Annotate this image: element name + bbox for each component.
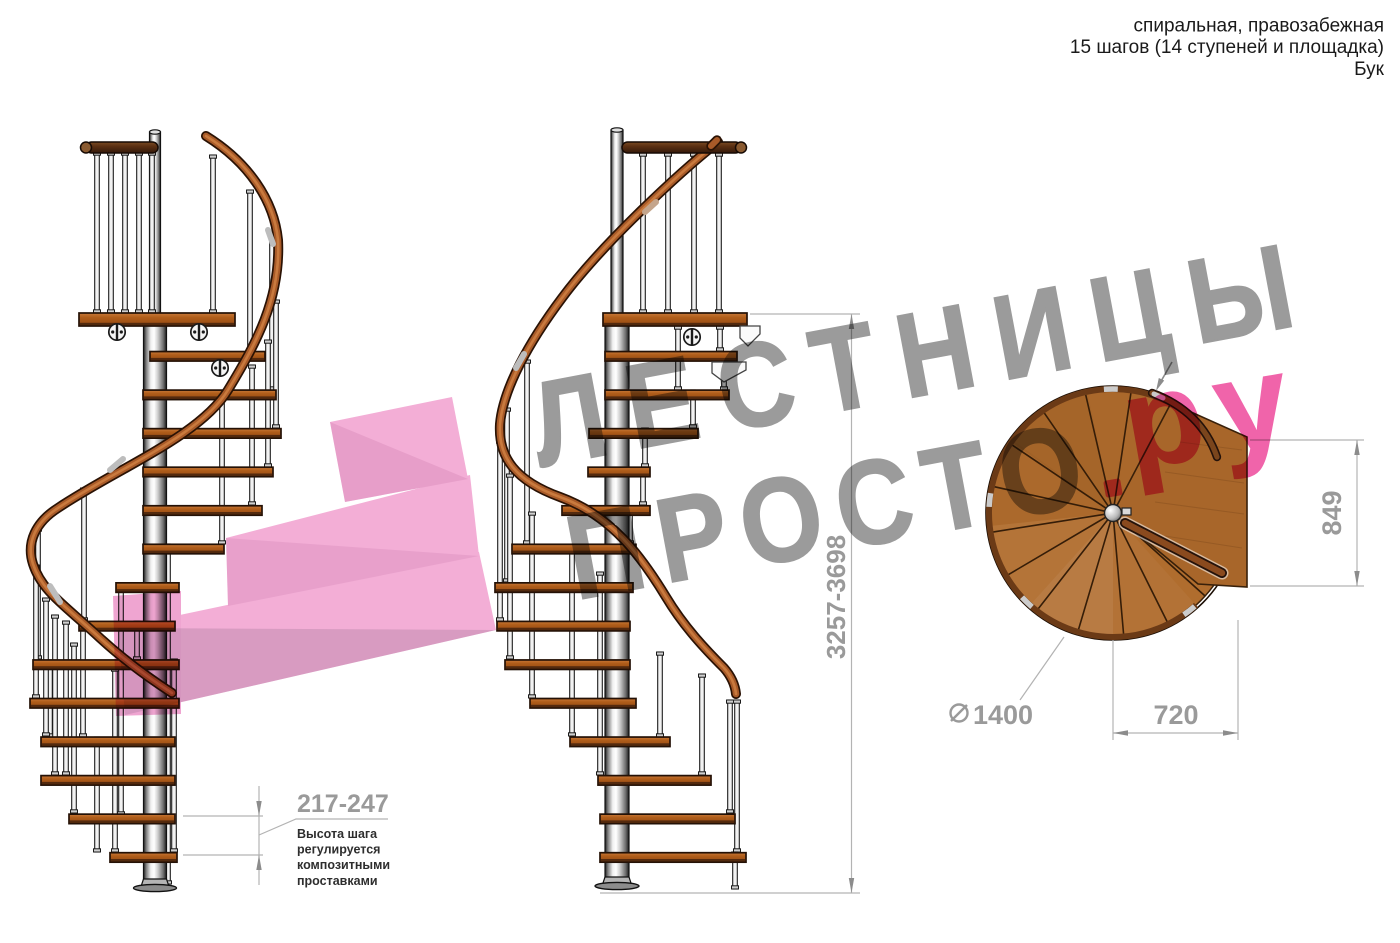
svg-text:720: 720: [1153, 700, 1198, 730]
svg-text:217-247: 217-247: [297, 790, 389, 818]
svg-text:15 шагов (14 ступеней и площад: 15 шагов (14 ступеней и площадка): [1070, 37, 1384, 58]
svg-text:849: 849: [1317, 490, 1347, 535]
svg-text:спиральная, правозабежная: спиральная, правозабежная: [1134, 16, 1384, 37]
svg-text:Высота шагарегулируетсякомпози: Высота шагарегулируетсякомпозитнымипрост…: [297, 827, 390, 888]
svg-text:ру: ру: [1112, 323, 1315, 498]
svg-text:Бук: Бук: [1354, 59, 1385, 80]
svg-text:1400: 1400: [973, 700, 1033, 730]
